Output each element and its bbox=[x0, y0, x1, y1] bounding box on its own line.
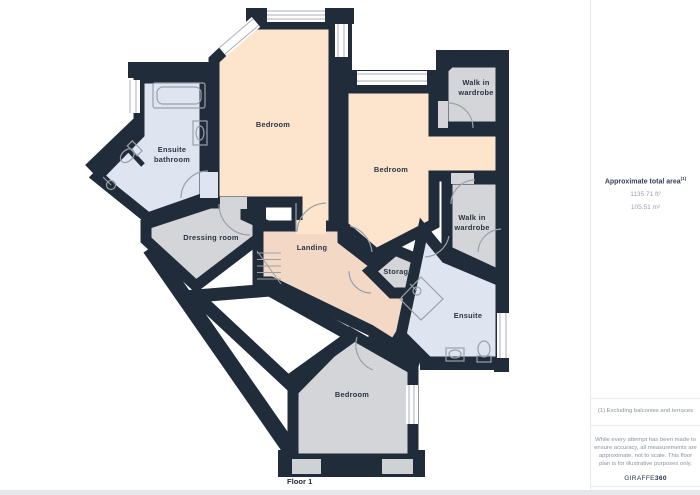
label-wiw-top-2: wardrobe bbox=[457, 88, 493, 97]
window-bedroom3-right bbox=[406, 385, 418, 424]
opening-bathroom bbox=[200, 172, 218, 198]
opening-bedroom-landing bbox=[296, 220, 326, 234]
area-ft: 1135.71 ft² bbox=[591, 191, 700, 198]
label-ensuite-bathroom-2: bathroom bbox=[154, 155, 190, 164]
label-landing: Landing bbox=[297, 243, 328, 252]
floorplan-svg: Bedroom Bedroom Bedroom Ensuite bathroom… bbox=[0, 0, 590, 495]
window-recess-right bbox=[382, 459, 413, 474]
floorplan-canvas: Bedroom Bedroom Bedroom Ensuite bathroom… bbox=[0, 0, 590, 495]
area-note-ref: (1) bbox=[681, 176, 687, 181]
floorplan-page: Bedroom Bedroom Bedroom Ensuite bathroom… bbox=[0, 0, 700, 495]
disclaimer: While every attempt has been made to ens… bbox=[591, 425, 700, 483]
label-wiw-top-1: Walk in bbox=[462, 78, 490, 87]
label-ensuite: Ensuite bbox=[454, 311, 482, 320]
window-bay-right bbox=[335, 24, 348, 57]
label-storage: Storage bbox=[383, 267, 412, 276]
disclaimer-line: ensure accuracy, all measurements are bbox=[591, 444, 700, 452]
disclaimer-line: plan is for illustrative purposes only. bbox=[591, 460, 700, 468]
label-wiw-bottom-2: wardrobe bbox=[453, 223, 489, 232]
logo-360: 360 bbox=[655, 475, 667, 482]
disclaimer-line: While every attempt has been made to bbox=[591, 436, 700, 444]
window-bathroom-left bbox=[127, 80, 140, 113]
window-recess-left bbox=[292, 459, 321, 474]
area-title-text: Approximate total area bbox=[605, 178, 681, 185]
opening-wardrobe-bottom bbox=[451, 173, 474, 184]
logo-text: GIRAFFE bbox=[624, 475, 655, 482]
label-bedroom-bottom: Bedroom bbox=[335, 390, 369, 399]
label-bedroom-right: Bedroom bbox=[374, 165, 408, 174]
label-bedroom-top: Bedroom bbox=[256, 120, 290, 129]
label-wiw-bottom-1: Walk in bbox=[458, 213, 486, 222]
label-ensuite-bathroom-1: Ensuite bbox=[158, 145, 186, 154]
disclaimer-line: approximate, not to scale. This floor bbox=[591, 452, 700, 460]
footnote: (1) Excluding balconies and terraces bbox=[591, 398, 700, 414]
bottom-strip bbox=[0, 490, 700, 495]
opening-dressing bbox=[220, 197, 247, 209]
window-bedroom2-top bbox=[357, 71, 427, 85]
area-title: Approximate total area(1) bbox=[591, 176, 700, 185]
giraffe360-logo: GIRAFFE360 bbox=[591, 475, 700, 483]
floor-label: Floor 1 bbox=[287, 477, 313, 486]
label-dressing: Dressing room bbox=[183, 233, 239, 242]
area-block: Approximate total area(1) 1135.71 ft² 10… bbox=[591, 176, 700, 211]
opening-wardrobe-top bbox=[438, 101, 448, 128]
window-ensuite-right bbox=[497, 313, 510, 358]
area-m: 105.51 m² bbox=[591, 204, 700, 211]
info-panel: Approximate total area(1) 1135.71 ft² 10… bbox=[590, 0, 700, 495]
panel-divider bbox=[591, 486, 700, 487]
